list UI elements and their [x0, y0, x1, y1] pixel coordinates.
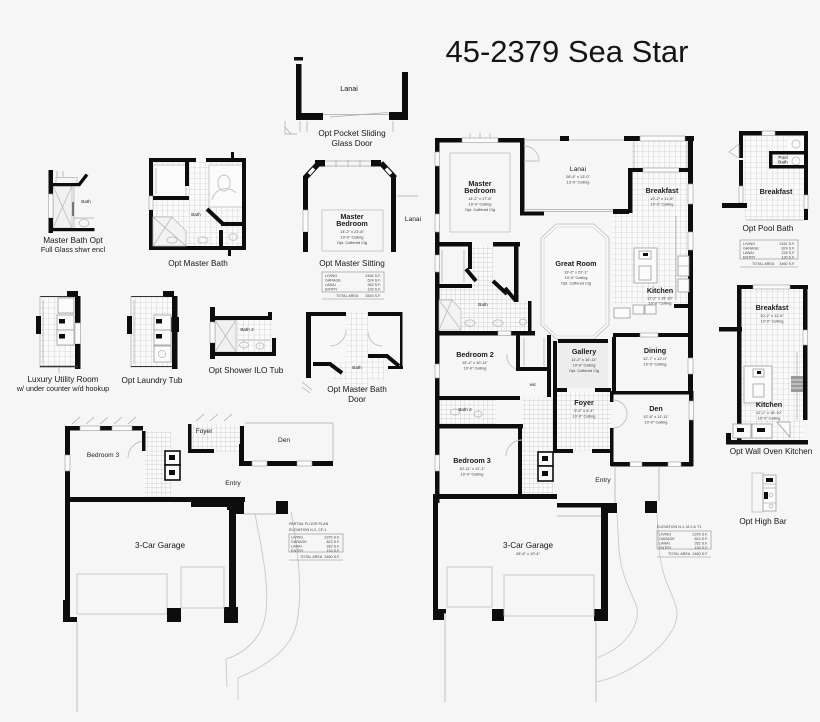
- svg-text:ENTRY: ENTRY: [291, 549, 304, 553]
- svg-text:w/ under counter w/d hookup: w/ under counter w/d hookup: [16, 384, 109, 393]
- svg-text:11'-2" x 15'-11": 11'-2" x 15'-11": [571, 357, 597, 362]
- svg-text:823 S.F.: 823 S.F.: [326, 540, 340, 544]
- svg-text:10'-0" Ceiling: 10'-0" Ceiling: [565, 275, 588, 280]
- svg-text:GARAGE: GARAGE: [325, 279, 341, 283]
- svg-text:45-2379 Sea Star: 45-2379 Sea Star: [445, 34, 688, 69]
- svg-text:2376 S.F.: 2376 S.F.: [692, 533, 708, 537]
- svg-text:ENTRY: ENTRY: [743, 256, 756, 260]
- svg-text:Lanai: Lanai: [570, 166, 587, 173]
- svg-text:10'-0" Ceiling: 10'-0" Ceiling: [645, 420, 668, 425]
- svg-text:Bath: Bath: [81, 199, 91, 204]
- svg-text:wic: wic: [530, 382, 537, 387]
- svg-text:3460 S.F.: 3460 S.F.: [324, 555, 340, 559]
- svg-text:12'-7" x 12'-0": 12'-7" x 12'-0": [643, 356, 668, 361]
- svg-text:282 S.F.: 282 S.F.: [326, 545, 340, 549]
- svg-text:LANAI: LANAI: [325, 283, 336, 287]
- svg-text:Dining: Dining: [644, 346, 666, 355]
- svg-text:GARAGE: GARAGE: [743, 247, 759, 251]
- svg-text:ELEVATION N-2, CF-1: ELEVATION N-2, CF-1: [289, 528, 326, 532]
- svg-text:Luxury Utility Room: Luxury Utility Room: [28, 375, 99, 384]
- svg-text:PARTIAL FLOOR PLAN: PARTIAL FLOOR PLAN: [289, 522, 329, 526]
- svg-text:624 S.F.: 624 S.F.: [367, 279, 381, 283]
- svg-text:LIVING: LIVING: [659, 533, 671, 537]
- svg-text:Opt Master Bath: Opt Master Bath: [327, 385, 387, 394]
- svg-text:LIVING: LIVING: [325, 274, 337, 278]
- svg-text:Bedroom 3: Bedroom 3: [87, 452, 120, 459]
- svg-text:TOTAL AREA: TOTAL AREA: [752, 262, 775, 266]
- svg-text:10'-2" x 11'-6": 10'-2" x 11'-6": [650, 196, 674, 201]
- svg-text:Bedroom: Bedroom: [336, 219, 368, 228]
- svg-text:Bedroom 3: Bedroom 3: [453, 456, 491, 465]
- svg-text:Bath: Bath: [191, 212, 201, 217]
- svg-text:Foyer: Foyer: [196, 428, 214, 435]
- svg-text:10'-0" Ceiling: 10'-0" Ceiling: [651, 202, 674, 207]
- svg-text:GARAGE: GARAGE: [659, 537, 675, 541]
- svg-text:10'-0" Ceiling: 10'-0" Ceiling: [644, 362, 667, 367]
- svg-text:14'-2" x 23'-8": 14'-2" x 23'-8": [340, 229, 365, 234]
- svg-text:ELEVATION N-1, M-2 & T1: ELEVATION N-1, M-2 & T1: [657, 525, 701, 529]
- svg-text:2441 S.F.: 2441 S.F.: [779, 242, 795, 246]
- svg-text:LANAI: LANAI: [743, 251, 754, 255]
- svg-text:Great Room: Great Room: [555, 259, 596, 268]
- svg-text:Den: Den: [649, 404, 663, 413]
- svg-text:Opt Wall Oven Kitchen: Opt Wall Oven Kitchen: [730, 447, 813, 456]
- svg-text:Bath: Bath: [352, 365, 362, 370]
- svg-text:3-Car Garage: 3-Car Garage: [135, 541, 186, 550]
- svg-text:Glass Door: Glass Door: [332, 139, 373, 148]
- svg-text:TOTAL AREA: TOTAL AREA: [300, 555, 323, 559]
- svg-text:Gallery: Gallery: [572, 347, 596, 356]
- svg-text:Bath 2: Bath 2: [240, 327, 254, 332]
- svg-text:Bath: Bath: [478, 302, 488, 307]
- svg-text:Opt Pool Bath: Opt Pool Bath: [743, 224, 794, 233]
- svg-text:LIVING: LIVING: [743, 242, 755, 246]
- svg-text:10'-0" Ceiling: 10'-0" Ceiling: [761, 319, 784, 324]
- svg-text:ENTRY: ENTRY: [325, 288, 338, 292]
- svg-text:LANAI: LANAI: [659, 542, 670, 546]
- svg-text:12'-6" x 11'-11": 12'-6" x 11'-11": [643, 414, 669, 419]
- svg-text:Full Glass shwr encl: Full Glass shwr encl: [41, 245, 106, 254]
- svg-text:Bedroom 2: Bedroom 2: [456, 350, 494, 359]
- svg-text:130 S.F.: 130 S.F.: [326, 549, 340, 553]
- svg-text:Opt. Coffered Clg: Opt. Coffered Clg: [569, 368, 599, 373]
- svg-text:10'-0" Ceiling: 10'-0" Ceiling: [464, 366, 487, 371]
- svg-text:Bedroom: Bedroom: [464, 186, 496, 195]
- svg-text:12'-2" x 15'-10": 12'-2" x 15'-10": [756, 410, 783, 415]
- svg-text:Master Bath Opt: Master Bath Opt: [43, 236, 103, 245]
- svg-text:10'-0" Ceiling: 10'-0" Ceiling: [469, 202, 492, 207]
- svg-text:Door: Door: [348, 395, 366, 404]
- svg-text:ENTRY: ENTRY: [659, 546, 672, 550]
- svg-text:Breakfast: Breakfast: [760, 187, 793, 196]
- svg-text:Kitchen: Kitchen: [647, 286, 673, 295]
- svg-text:GARAGE: GARAGE: [291, 540, 307, 544]
- svg-text:Opt Master Bath: Opt Master Bath: [168, 259, 228, 268]
- svg-text:130 S.F.: 130 S.F.: [367, 288, 381, 292]
- svg-text:13'-0" Ceiling: 13'-0" Ceiling: [567, 180, 590, 185]
- svg-text:824 S.F.: 824 S.F.: [781, 247, 795, 251]
- svg-text:10'-0" Ceiling: 10'-0" Ceiling: [461, 472, 484, 477]
- svg-text:Opt. Coffered Clg: Opt. Coffered Clg: [337, 240, 367, 245]
- svg-text:2376 S.F.: 2376 S.F.: [324, 536, 340, 540]
- svg-text:Opt Laundry Tub: Opt Laundry Tub: [122, 376, 183, 385]
- svg-text:Entry: Entry: [225, 480, 241, 487]
- svg-text:Bath: Bath: [778, 160, 788, 165]
- svg-text:3460 S.F.: 3460 S.F.: [692, 552, 708, 556]
- svg-text:130 S.F.: 130 S.F.: [781, 256, 795, 260]
- svg-text:14'-2" x 17'-8": 14'-2" x 17'-8": [468, 196, 493, 201]
- svg-text:282 S.F.: 282 S.F.: [694, 542, 708, 546]
- svg-text:Lanai: Lanai: [340, 84, 358, 93]
- svg-text:10'-11" x 11'-1": 10'-11" x 11'-1": [459, 466, 485, 471]
- svg-text:Entry: Entry: [595, 477, 611, 484]
- svg-text:130 S.F.: 130 S.F.: [694, 546, 708, 550]
- svg-text:10'-0" Ceiling: 10'-0" Ceiling: [649, 301, 672, 306]
- svg-text:10'-2" x 11'-6": 10'-2" x 11'-6": [760, 313, 784, 318]
- svg-text:10'-0" Ceiling: 10'-0" Ceiling: [573, 414, 596, 419]
- svg-text:3460 S.F.: 3460 S.F.: [779, 262, 795, 266]
- svg-text:3-Car Garage: 3-Car Garage: [503, 541, 554, 550]
- svg-text:10'-0" Ceiling: 10'-0" Ceiling: [573, 363, 596, 368]
- svg-text:15'-4" x 10'-11": 15'-4" x 10'-11": [462, 360, 488, 365]
- svg-text:Bath 2: Bath 2: [458, 407, 472, 412]
- svg-text:TOTAL AREA: TOTAL AREA: [336, 294, 359, 298]
- svg-text:10'-0" Ceiling: 10'-0" Ceiling: [341, 235, 364, 240]
- svg-text:9'-0" x 9'-4": 9'-0" x 9'-4": [574, 408, 594, 413]
- svg-text:3515 S.F.: 3515 S.F.: [365, 294, 381, 298]
- svg-text:Opt Pocket Sliding: Opt Pocket Sliding: [318, 129, 386, 138]
- svg-text:Opt. Coffered Clg: Opt. Coffered Clg: [465, 207, 495, 212]
- svg-text:TOTAL AREA: TOTAL AREA: [668, 552, 691, 556]
- svg-text:Den: Den: [278, 437, 290, 444]
- svg-text:Foyer: Foyer: [574, 398, 594, 407]
- svg-text:Kitchen: Kitchen: [756, 400, 782, 409]
- svg-text:28'-6" x 19'-4": 28'-6" x 19'-4": [516, 551, 541, 556]
- svg-text:Lanai: Lanai: [405, 216, 422, 223]
- svg-text:LIVING: LIVING: [291, 536, 303, 540]
- svg-text:824 S.F.: 824 S.F.: [694, 537, 708, 541]
- svg-text:Opt High Bar: Opt High Bar: [739, 517, 787, 526]
- svg-text:2464 S.F.: 2464 S.F.: [365, 274, 381, 278]
- svg-text:Opt. Coffered Clg: Opt. Coffered Clg: [561, 281, 591, 286]
- svg-text:235 S.F.: 235 S.F.: [781, 251, 795, 255]
- svg-text:19'-2" x 22'-1": 19'-2" x 22'-1": [564, 270, 589, 275]
- svg-text:26'-4" x 13'-0": 26'-4" x 13'-0": [566, 174, 591, 179]
- svg-text:Opt Master Sitting: Opt Master Sitting: [319, 259, 385, 268]
- svg-text:Opt Shower ILO Tub: Opt Shower ILO Tub: [209, 366, 284, 375]
- svg-text:Breakfast: Breakfast: [646, 186, 679, 195]
- svg-text:282 S.F.: 282 S.F.: [367, 283, 381, 287]
- svg-text:10'-0" Ceiling: 10'-0" Ceiling: [758, 416, 781, 421]
- svg-text:Breakfast: Breakfast: [756, 303, 789, 312]
- svg-text:LANAI: LANAI: [291, 545, 302, 549]
